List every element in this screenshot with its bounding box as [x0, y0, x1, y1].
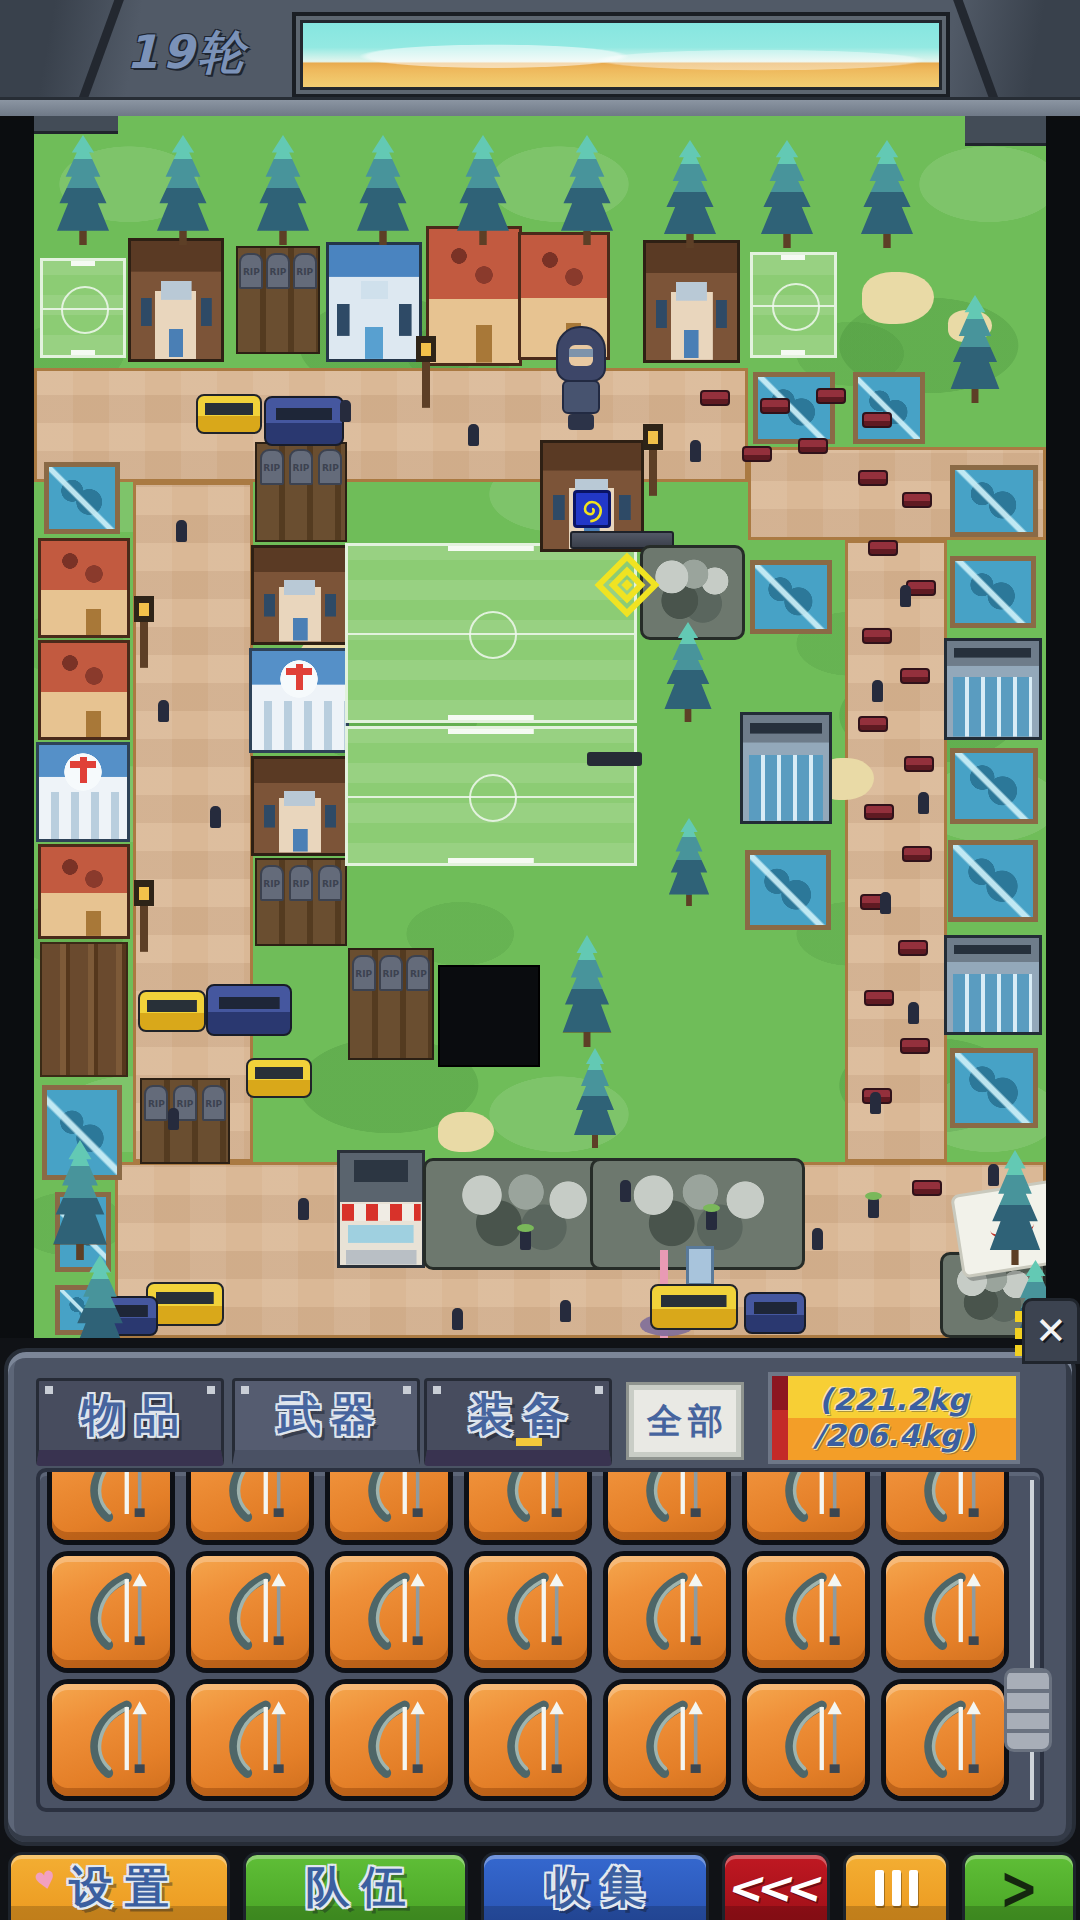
water-pool: [750, 560, 832, 634]
graveyard: RIP RIP RIP: [236, 246, 320, 354]
weight-capacity: /206.4kg): [814, 1418, 975, 1454]
school-bus: [138, 990, 206, 1032]
building-cottage: [38, 640, 130, 740]
car-wreck: [898, 940, 928, 956]
zombie-figure: [812, 1228, 823, 1250]
pine-tree: [352, 135, 414, 245]
villager-figure: [706, 1208, 717, 1230]
pine-tree: [556, 135, 618, 245]
inventory-item-bow[interactable]: [52, 1556, 170, 1668]
settings-button[interactable]: ♥ 设置: [8, 1852, 230, 1920]
bow-icon: [624, 1569, 710, 1655]
zombie-figure: [918, 792, 929, 814]
team-button[interactable]: 队伍: [243, 1852, 468, 1920]
road-left: [133, 482, 253, 1162]
character-legs: [568, 414, 594, 430]
tombstone: RIP: [318, 449, 342, 485]
pine-tree: [452, 135, 514, 245]
building-cottage: [38, 844, 130, 939]
bow-icon: [346, 1697, 432, 1783]
car-wreck: [862, 628, 892, 644]
spiral-sign: [573, 490, 611, 528]
bow-icon: [763, 1569, 849, 1655]
building-storefront: [944, 638, 1042, 740]
car-wreck: [868, 540, 898, 556]
zombie-figure: [872, 680, 883, 702]
right-vignette: [1046, 116, 1080, 1338]
car-wreck: [760, 398, 790, 414]
pause-bars-icon: [875, 1870, 884, 1906]
building-storefront: [740, 712, 832, 824]
sand-patch: [862, 272, 934, 324]
pine-tree: [252, 135, 314, 245]
close-icon: ✕: [1035, 1309, 1067, 1353]
car-wreck: [864, 990, 894, 1006]
zombie-figure: [988, 1164, 999, 1186]
zombie-figure: [158, 700, 169, 722]
inventory-item-bow[interactable]: [886, 1684, 1004, 1796]
bezel-strut: [68, 0, 124, 129]
graveyard: RIP RIP RIP: [255, 442, 347, 542]
zombie-figure: [176, 520, 187, 542]
scrollbar-track[interactable]: [1030, 1480, 1034, 1800]
game-screen: 19轮 RIP RIP RIP: [0, 0, 1080, 1920]
close-button[interactable]: ✕: [1022, 1298, 1080, 1364]
pine-tree: [856, 140, 918, 248]
tab-weapons[interactable]: 武器: [232, 1378, 420, 1466]
villager-figure: [520, 1228, 531, 1250]
pause-bars-icon: [909, 1870, 918, 1906]
zombie-figure: [908, 1002, 919, 1024]
tombstone: RIP: [318, 865, 342, 901]
speed-pause-button[interactable]: [843, 1852, 949, 1920]
water-pool: [948, 840, 1038, 922]
soccer-field: [40, 258, 126, 358]
zombie-figure: [560, 1300, 571, 1322]
equipment-tab-marker: [516, 1438, 542, 1446]
graveyard: RIP RIP RIP: [140, 1078, 230, 1164]
bow-icon: [207, 1697, 293, 1783]
pine-tree: [659, 140, 721, 248]
water-pool: [950, 556, 1036, 628]
bow-icon: [624, 1468, 710, 1527]
car: [264, 396, 344, 446]
inventory-item-bow[interactable]: [886, 1468, 1004, 1540]
tombstone: RIP: [202, 1085, 226, 1121]
pine-tree: [756, 140, 818, 248]
street-lamp: [134, 596, 154, 668]
graveyard: RIP RIP RIP: [255, 858, 347, 946]
school-bus: [650, 1284, 738, 1330]
tab-equipment[interactable]: 装备: [424, 1378, 612, 1466]
building-hospital: [36, 742, 130, 842]
soccer-field: [345, 726, 637, 866]
building-hospital: [249, 648, 349, 753]
tombstone: RIP: [352, 955, 376, 991]
building-cottage: [38, 538, 130, 638]
building-mansion: [251, 756, 349, 856]
inventory-item-bow[interactable]: [330, 1468, 448, 1540]
villager-figure: [868, 1196, 879, 1218]
car-wreck: [900, 668, 930, 684]
tombstone: RIP: [260, 449, 284, 485]
inventory-item-bow[interactable]: [608, 1556, 726, 1668]
tombstone: RIP: [260, 865, 284, 901]
tab-equipment-label: 装备: [459, 1386, 577, 1445]
zombie-figure: [168, 1108, 179, 1130]
zombie-figure: [880, 892, 891, 914]
filter-all-label: 全部: [641, 1398, 729, 1445]
bench: [587, 752, 642, 766]
bow-icon: [68, 1468, 154, 1527]
tombstone: RIP: [293, 253, 317, 289]
inventory-item-bow[interactable]: [330, 1684, 448, 1796]
water-pool: [44, 462, 120, 534]
tombstone: RIP: [144, 1085, 168, 1121]
speed-rewind-button[interactable]: <<<: [722, 1852, 830, 1920]
collect-button[interactable]: 收集: [481, 1852, 709, 1920]
building-mansion: [643, 240, 740, 363]
inventory-item-bow[interactable]: [747, 1468, 865, 1540]
tab-items[interactable]: 物品: [36, 1378, 224, 1466]
inventory-item-bow[interactable]: [469, 1468, 587, 1540]
tab-items-label: 物品: [71, 1386, 189, 1445]
school-bus: [246, 1058, 312, 1098]
zombie-figure: [690, 440, 701, 462]
soccer-field: [345, 543, 637, 723]
water-pool: [853, 372, 925, 444]
scrollbar-thumb[interactable]: [1004, 1668, 1052, 1752]
town-map[interactable]: RIP RIP RIP RIP RIP RIP RIP RIP: [0, 116, 1080, 1338]
zombie-figure: [620, 1180, 631, 1202]
target-marker: [595, 553, 659, 617]
car-wreck: [700, 390, 730, 406]
bow-icon: [485, 1468, 571, 1527]
water-pool: [950, 1048, 1038, 1128]
car-wreck: [864, 804, 894, 820]
sky-horizon-view: [300, 20, 942, 90]
bow-icon: [902, 1697, 988, 1783]
bow-icon: [763, 1697, 849, 1783]
zombie-figure: [870, 1092, 881, 1114]
bow-icon: [346, 1569, 432, 1655]
car-wreck: [902, 846, 932, 862]
inventory-item-bow[interactable]: [747, 1556, 865, 1668]
zombie-figure: [900, 585, 911, 607]
bow-icon: [68, 1569, 154, 1655]
tab-weapons-label: 武器: [267, 1386, 385, 1445]
inventory-grid[interactable]: [36, 1468, 1044, 1812]
car-wreck: [862, 412, 892, 428]
character-hood: [556, 326, 606, 382]
zombie-figure: [298, 1198, 309, 1220]
car-wreck: [798, 438, 828, 454]
team-label: 队伍: [294, 1858, 418, 1917]
tombstone: RIP: [379, 955, 403, 991]
inventory-item-bow[interactable]: [886, 1556, 1004, 1668]
graveyard: RIP RIP RIP: [348, 948, 434, 1060]
street-lamp: [643, 424, 663, 496]
car-wreck: [902, 492, 932, 508]
inventory-item-bow[interactable]: [52, 1468, 170, 1540]
chevron-right-icon: >: [1000, 1852, 1039, 1920]
zombie-figure: [210, 806, 221, 828]
bezel-strut: [952, 0, 1008, 129]
bow-icon: [346, 1468, 432, 1527]
car-wreck: [858, 470, 888, 486]
car-wreck: [858, 716, 888, 732]
left-vignette: [0, 116, 34, 1338]
building-shop-awning: [337, 1150, 425, 1268]
tombstone: RIP: [289, 449, 313, 485]
car-wreck: [900, 1038, 930, 1054]
speed-forward-button[interactable]: >: [962, 1852, 1076, 1920]
building-mansion: [251, 545, 349, 645]
bow-icon: [207, 1468, 293, 1527]
tombstone: RIP: [289, 865, 313, 901]
inventory-item-bow[interactable]: [469, 1684, 587, 1796]
weight-current: (221.2kg: [819, 1382, 969, 1418]
settings-label: 设置: [57, 1858, 181, 1917]
heart-icon: ♥: [32, 1865, 60, 1897]
pause-bars-icon: [892, 1870, 901, 1906]
chevrons-left-icon: <<<: [723, 1862, 828, 1913]
day-night-window: [292, 12, 950, 98]
bow-icon: [902, 1468, 988, 1527]
collect-label: 收集: [533, 1858, 657, 1917]
tombstone: RIP: [239, 253, 263, 289]
bow-icon: [485, 1569, 571, 1655]
inventory-item-bow[interactable]: [191, 1556, 309, 1668]
pine-tree: [558, 935, 616, 1047]
inventory-item-bow[interactable]: [52, 1684, 170, 1796]
soccer-field: [750, 252, 837, 358]
car-wreck: [912, 1180, 942, 1196]
school-bus: [196, 394, 262, 434]
building-storefront: [944, 935, 1042, 1035]
inventory-item-bow[interactable]: [608, 1468, 726, 1540]
building-school: [326, 242, 422, 362]
filter-all-button[interactable]: 全部: [626, 1382, 744, 1460]
pine-tree: [665, 818, 713, 906]
zombie-figure: [468, 424, 479, 446]
zombie-figure: [452, 1308, 463, 1330]
water-pool: [950, 465, 1038, 537]
bow-icon: [624, 1697, 710, 1783]
tombstone: RIP: [406, 955, 430, 991]
weight-indicator: (221.2kg /206.4kg): [768, 1372, 1020, 1464]
pine-tree: [152, 135, 214, 245]
black-hole: [438, 965, 540, 1067]
street-lamp: [134, 880, 154, 952]
street-lamp: [416, 336, 436, 408]
zombie-figure: [340, 400, 351, 422]
building-mansion: [128, 238, 224, 362]
bow-icon: [902, 1569, 988, 1655]
car: [744, 1292, 806, 1334]
farm-plots: [40, 942, 128, 1077]
car-wreck: [904, 756, 934, 772]
water-pool: [950, 748, 1038, 824]
player-character[interactable]: [554, 326, 608, 432]
water-pool: [745, 850, 831, 930]
sand-patch: [438, 1112, 494, 1152]
inventory-item-bow[interactable]: [608, 1684, 726, 1796]
inventory-item-bow[interactable]: [747, 1684, 865, 1796]
building-cottage: [426, 226, 522, 366]
inventory-item-bow[interactable]: [191, 1468, 309, 1540]
top-hud-bar: 19轮: [0, 0, 1080, 116]
bow-icon: [207, 1569, 293, 1655]
basketball-hoop-board: [686, 1246, 714, 1286]
inventory-item-bow[interactable]: [330, 1556, 448, 1668]
car: [206, 984, 292, 1036]
bow-icon: [763, 1468, 849, 1527]
tombstone: RIP: [266, 253, 290, 289]
inventory-item-bow[interactable]: [469, 1556, 587, 1668]
round-counter: 19轮: [126, 22, 248, 84]
bow-icon: [68, 1697, 154, 1783]
bow-icon: [485, 1697, 571, 1783]
pine-tree: [52, 135, 114, 245]
pine-tree: [946, 295, 1004, 403]
inventory-item-bow[interactable]: [191, 1684, 309, 1796]
car-wreck: [816, 388, 846, 404]
car-wreck: [742, 446, 772, 462]
pine-tree: [570, 1048, 620, 1148]
character-body: [562, 380, 600, 414]
